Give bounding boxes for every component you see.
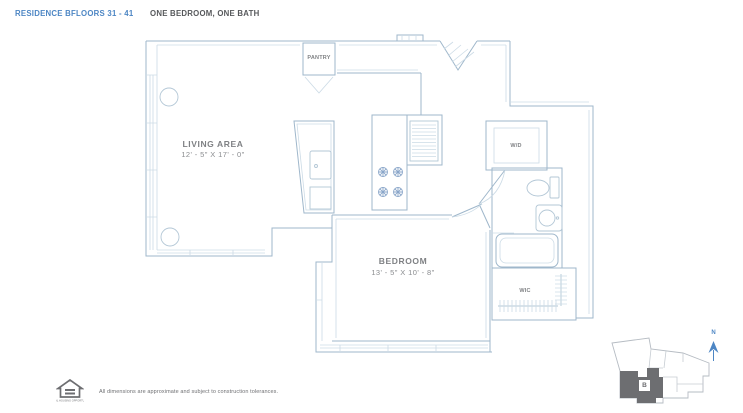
living-area-label: LIVING AREA — [153, 139, 273, 149]
pantry-closet — [303, 43, 335, 93]
compass-north-icon — [709, 341, 719, 361]
key-plan-unit-letter: B — [639, 380, 650, 391]
refrigerator — [410, 121, 438, 161]
bedroom-dimensions: 13' - 5" X 10' - 8" — [343, 268, 463, 277]
bathtub — [496, 234, 558, 267]
column-circles — [160, 88, 179, 246]
key-plan — [612, 338, 709, 403]
bathroom-sink — [536, 205, 562, 231]
kitchen-island — [294, 121, 334, 213]
toilet — [527, 177, 559, 198]
kitchen-counter — [372, 115, 442, 210]
disclaimer-text: All dimensions are approximate and subje… — [99, 389, 278, 395]
bedroom-label: BEDROOM — [343, 256, 463, 266]
equal-housing-caption: EQUAL HOUSING OPPORTUNITY — [56, 399, 84, 403]
stove-burners — [379, 168, 403, 197]
compass-north-label: N — [708, 330, 719, 336]
floor-plan-page: RESIDENCE B FLOORS 31 - 41 ONE BEDROOM, … — [0, 0, 743, 413]
outer-walls — [146, 35, 593, 352]
washer-dryer-label: W/D — [496, 143, 536, 149]
entry-door-swing — [440, 41, 477, 70]
walk-in-closet — [492, 268, 576, 320]
floor-plan-drawing — [0, 0, 743, 413]
hallway-walls — [337, 70, 421, 115]
pantry-label: PANTRY — [301, 55, 337, 61]
living-area-dimensions: 12' - 5" X 17' - 0" — [153, 150, 273, 159]
walk-in-closet-label: WIC — [505, 288, 545, 294]
equal-housing-logo-icon: EQUAL HOUSING OPPORTUNITY — [56, 379, 84, 405]
